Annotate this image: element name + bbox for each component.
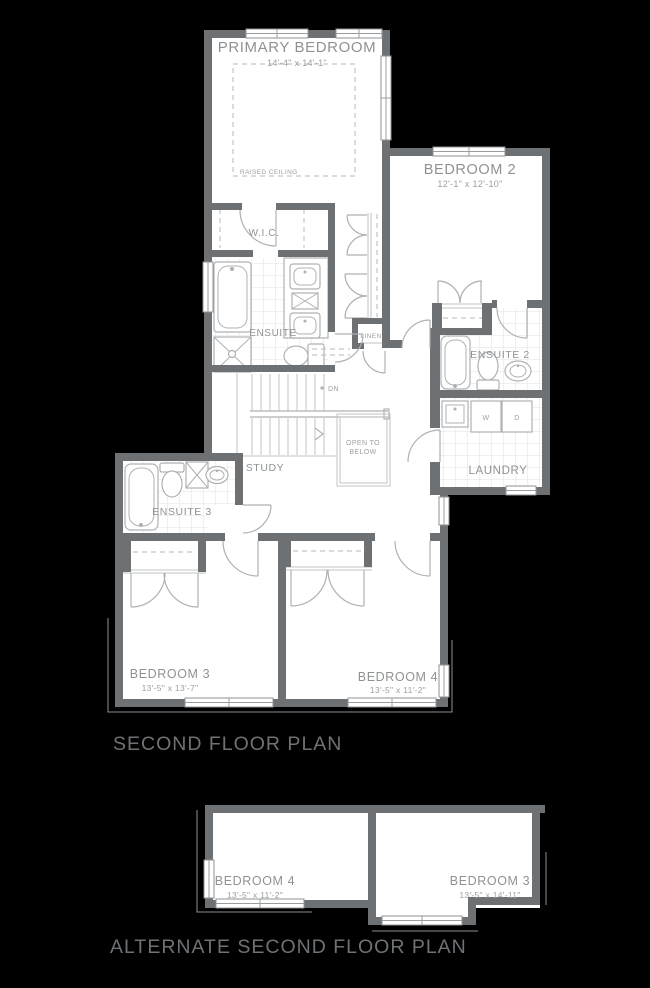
bathtub bbox=[441, 336, 470, 389]
alt-bedroom3-label: BEDROOM 3 bbox=[450, 874, 530, 888]
vanity-double-sinks bbox=[284, 258, 328, 338]
bedroom3-label: BEDROOM 3 bbox=[130, 667, 210, 681]
window bbox=[204, 860, 214, 898]
raised-ceiling-note: RAISED CEILING bbox=[240, 169, 298, 176]
bathtub bbox=[125, 464, 158, 530]
washer-label: W bbox=[482, 415, 489, 422]
open-to-below-line1: OPEN TO bbox=[346, 440, 380, 447]
bedroom4-label: BEDROOM 4 bbox=[358, 670, 438, 684]
window bbox=[439, 665, 449, 697]
stairs-dn-label: DN bbox=[328, 386, 339, 393]
study-label: STUDY bbox=[246, 462, 285, 474]
bedroom3-dims: 13'-5" x 13'-7" bbox=[142, 683, 199, 693]
alt-bedroom4-dims: 13'-5" x 11'-2" bbox=[227, 890, 283, 900]
primary-bedroom-label: PRIMARY BEDROOM bbox=[218, 39, 376, 56]
window bbox=[381, 56, 391, 140]
second-floor-plan-title: SECOND FLOOR PLAN bbox=[113, 733, 342, 755]
window bbox=[203, 262, 213, 312]
bedroom4-dims: 13'-5" x 11'-2" bbox=[370, 685, 426, 695]
sink bbox=[206, 467, 228, 484]
window bbox=[382, 916, 462, 925]
alt-bedroom3-dims: 13'-5" x 14'-11" bbox=[459, 890, 520, 900]
bathtub bbox=[214, 262, 251, 332]
window bbox=[506, 486, 536, 495]
ensuite2-label: ENSUITE 2 bbox=[470, 349, 530, 361]
window bbox=[216, 899, 304, 908]
toilet bbox=[160, 463, 184, 497]
window bbox=[348, 698, 436, 707]
window bbox=[336, 29, 382, 38]
sink bbox=[505, 361, 531, 381]
laundry-label: LAUNDRY bbox=[469, 465, 528, 477]
dryer-label: D bbox=[514, 415, 519, 422]
ensuite3-label: ENSUITE 3 bbox=[152, 506, 212, 518]
window bbox=[185, 698, 273, 707]
window bbox=[433, 147, 505, 156]
alternate-second-floor-plan-title: ALTERNATE SECOND FLOOR PLAN bbox=[110, 936, 467, 958]
shower bbox=[186, 462, 208, 488]
floor-plan-canvas: RAISED CEILING PRIMARY BEDROOM 14'-4" x … bbox=[0, 0, 650, 988]
window bbox=[439, 497, 449, 525]
alt-bedroom4-label: BEDROOM 4 bbox=[215, 874, 295, 888]
floor-plan-page: RAISED CEILING PRIMARY BEDROOM 14'-4" x … bbox=[0, 0, 650, 988]
open-to-below-line2: BELOW bbox=[349, 449, 376, 456]
primary-bedroom-dims: 14'-4" x 14'-1" bbox=[267, 58, 327, 68]
bedroom2-label: BEDROOM 2 bbox=[424, 162, 516, 178]
laundry-sink bbox=[442, 401, 468, 427]
bedroom2-dims: 12'-1" x 12'-10" bbox=[437, 179, 502, 189]
ensuite-label: ENSUITE bbox=[249, 328, 297, 339]
window bbox=[246, 29, 308, 38]
